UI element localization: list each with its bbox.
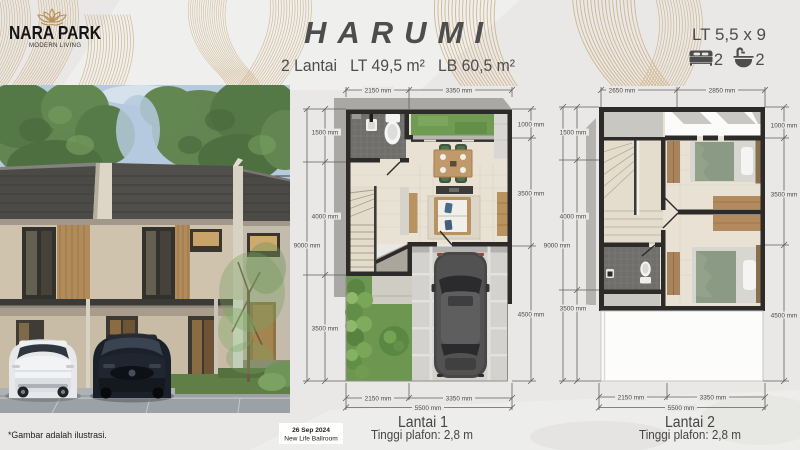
svg-text:1000 mm: 1000 mm (518, 121, 545, 128)
svg-text:3500 mm: 3500 mm (771, 191, 798, 198)
svg-text:Tinggi plafon: 2,8 m: Tinggi plafon: 2,8 m (371, 427, 473, 442)
svg-text:*Gambar adalah ilustrasi.: *Gambar adalah ilustrasi. (8, 430, 107, 440)
svg-text:1000 mm: 1000 mm (771, 122, 798, 129)
svg-text:1500 mm: 1500 mm (312, 129, 339, 136)
svg-text:3500 mm: 3500 mm (560, 305, 587, 312)
svg-text:MODERN LIVING: MODERN LIVING (29, 43, 81, 49)
svg-text:HARUMI: HARUMI (304, 15, 494, 50)
svg-text:2: 2 (755, 51, 764, 69)
svg-text:Tinggi plafon: 2,8 m: Tinggi plafon: 2,8 m (639, 427, 741, 442)
svg-text:9000 mm: 9000 mm (544, 242, 571, 249)
svg-text:2: 2 (714, 51, 723, 69)
svg-text:4000 mm: 4000 mm (312, 213, 339, 220)
svg-text:2850 mm: 2850 mm (709, 87, 736, 94)
svg-text:2150 mm: 2150 mm (365, 87, 392, 94)
svg-text:NARA PARK: NARA PARK (9, 22, 102, 43)
svg-text:4000 mm: 4000 mm (560, 213, 587, 220)
svg-text:2150 mm: 2150 mm (365, 395, 392, 402)
svg-text:26 Sep 2024: 26 Sep 2024 (292, 427, 330, 434)
svg-text:5500 mm: 5500 mm (668, 405, 695, 412)
svg-text:1500 mm: 1500 mm (560, 129, 587, 136)
svg-text:3350 mm: 3350 mm (446, 395, 473, 402)
svg-text:3500 mm: 3500 mm (518, 190, 545, 197)
svg-text:3350 mm: 3350 mm (700, 394, 727, 401)
svg-text:4500 mm: 4500 mm (771, 312, 798, 319)
svg-text:5500 mm: 5500 mm (415, 405, 442, 412)
svg-text:3500 mm: 3500 mm (312, 325, 339, 332)
svg-text:LT 5,5 x 9: LT 5,5 x 9 (692, 25, 766, 44)
svg-text:2 Lantai LT 49,5 m² LB 60,: 2 Lantai LT 49,5 m² LB 60,5 m² (281, 56, 515, 75)
svg-text:3350 mm: 3350 mm (446, 87, 473, 94)
svg-text:New Life Ballroom: New Life Ballroom (284, 436, 338, 443)
svg-text:2650 mm: 2650 mm (609, 87, 636, 94)
svg-text:2150 mm: 2150 mm (618, 394, 645, 401)
svg-text:4500 mm: 4500 mm (518, 311, 545, 318)
svg-text:9000 mm: 9000 mm (294, 242, 321, 249)
